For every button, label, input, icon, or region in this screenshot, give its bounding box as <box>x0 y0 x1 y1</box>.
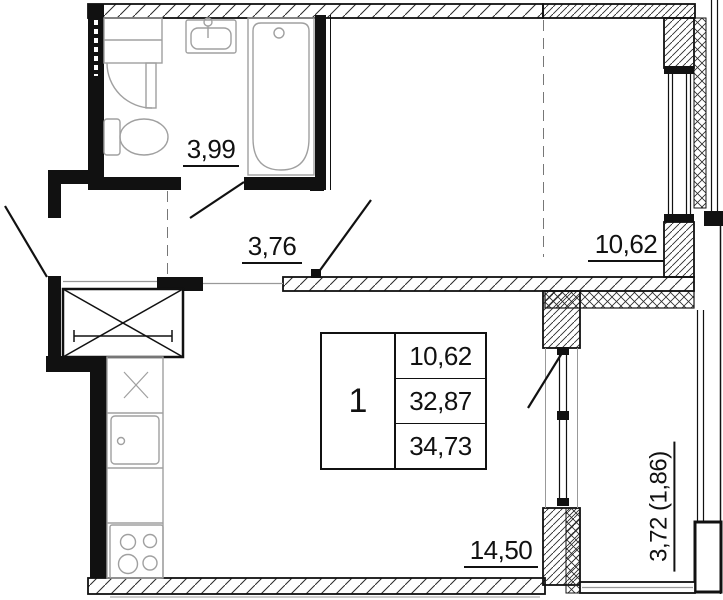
bathroom-sink <box>186 18 236 53</box>
apartment-area-value: 32,87 <box>396 379 485 424</box>
faucet <box>204 18 212 26</box>
stove <box>110 525 163 578</box>
balcony-window-frame-mark <box>557 498 569 506</box>
entrance-door-leaf <box>5 206 47 277</box>
kitchen-fixtures <box>107 357 163 578</box>
plan-drawing <box>0 0 723 600</box>
info-table-areas: 10,62 32,87 34,73 <box>396 334 485 468</box>
wall-mid-horizontal <box>283 277 694 291</box>
room-door-leaf <box>318 200 371 273</box>
shower-cabin <box>104 18 162 108</box>
bathroom-door-leaf <box>190 182 244 218</box>
area-label-hallway: 3,76 <box>242 233 302 264</box>
area-label-kitchen-living: 14,50 <box>464 537 538 568</box>
pier-balcony-lower-insulation <box>566 508 580 593</box>
pier-window-top <box>664 18 694 68</box>
faucet <box>118 438 125 445</box>
kitchen-sink <box>111 416 159 464</box>
pier-window-bottom <box>664 222 694 277</box>
wall-left-lower <box>48 276 61 360</box>
living-area-value: 10,62 <box>396 334 485 379</box>
pier-balcony-upper <box>543 291 580 348</box>
balcony-window-frame-mark <box>557 411 569 420</box>
bathtub-drain <box>274 28 284 38</box>
balcony-corner-post <box>695 522 721 592</box>
wall-bathroom-bottom-left <box>88 177 181 190</box>
floor-plan: 3,99 3,76 10,62 14,50 3,72 (1,86) 1 10,6… <box>0 0 723 600</box>
wall-kitchen-left <box>90 372 107 578</box>
closet <box>63 289 183 357</box>
appliance-cross-mark <box>124 372 148 398</box>
balcony-window-frame-mark <box>557 347 569 355</box>
rooms-count: 1 <box>322 334 396 468</box>
shower-door-arc <box>107 63 152 108</box>
bathtub <box>248 18 314 175</box>
window-cap-top <box>664 66 694 74</box>
wall-bathroom-bottom-jamb <box>310 182 324 191</box>
window-cap-bottom <box>664 214 694 222</box>
wall-bathroom-right <box>315 15 326 190</box>
area-label-balcony: 3,72 (1,86) <box>646 442 675 572</box>
wall-left-lower-cap <box>46 356 107 372</box>
toilet <box>104 119 168 155</box>
area-label-bathroom: 3,99 <box>183 136 239 167</box>
area-label-living-room: 10,62 <box>588 231 664 262</box>
wall-entry-step-v <box>48 170 61 218</box>
apartment-info-table: 1 10,62 32,87 34,73 <box>320 332 487 470</box>
wall-bottom <box>88 578 545 594</box>
total-area-value: 34,73 <box>396 424 485 468</box>
wall-insulation-right <box>694 18 706 208</box>
shower-door-panel <box>146 63 156 108</box>
wall-top-right <box>543 4 695 18</box>
neighbor-wall-cap <box>704 211 723 226</box>
